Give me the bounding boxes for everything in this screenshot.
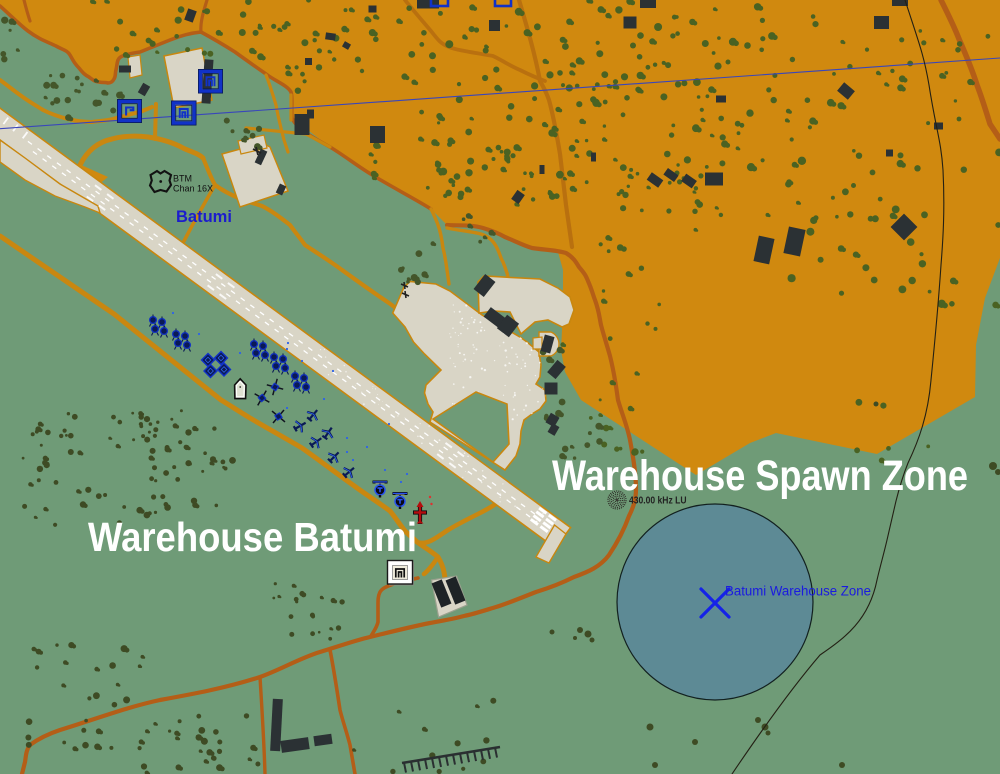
svg-text:Chan 16X: Chan 16X [173, 184, 213, 194]
svg-text:BTM: BTM [173, 174, 192, 184]
svg-text:Warehouse Batumi: Warehouse Batumi [88, 514, 417, 560]
svg-text:Batumi: Batumi [176, 208, 232, 226]
svg-text:Batumi Warehouse Zone: Batumi Warehouse Zone [725, 584, 871, 599]
svg-text:Warehouse Spawn Zone: Warehouse Spawn Zone [552, 453, 968, 500]
